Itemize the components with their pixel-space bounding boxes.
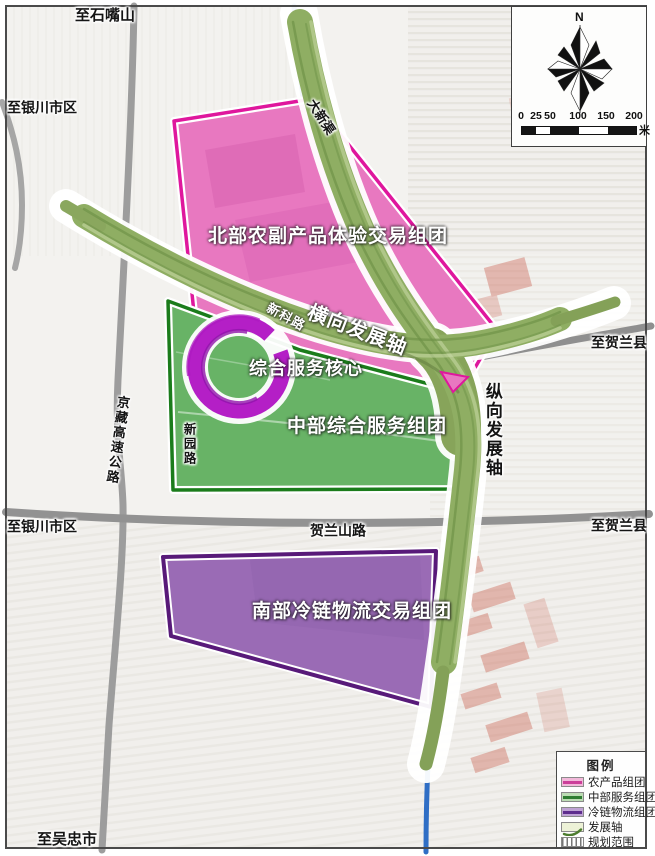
label-south-cluster: 南部冷链物流交易组团 bbox=[252, 602, 452, 622]
scale-tick-200: 200 bbox=[625, 110, 643, 122]
label-north-cluster: 北部农副产品体验交易组团 bbox=[208, 227, 448, 247]
scale-tick-0: 0 bbox=[518, 110, 524, 122]
label-central-cluster: 中部综合服务组团 bbox=[287, 417, 447, 437]
legend-item-central-service: 中部服务组团 bbox=[561, 789, 645, 804]
legend-panel: 图例 农产品组团 中部服务组团 冷链物流组团 发展轴 规划范围 bbox=[556, 751, 646, 848]
scale-segment bbox=[608, 127, 637, 134]
label-helanshan-road: 贺兰山路 bbox=[310, 524, 366, 539]
scale-tick-100: 100 bbox=[569, 110, 587, 122]
scale-tick-150: 150 bbox=[597, 110, 615, 122]
scale-tick-25: 25 bbox=[530, 110, 542, 122]
planning-map-page: 至石嘴山 至银川市区 至银川市区 至吴忠市 至贺兰县 至贺兰县 大新渠 新科路 … bbox=[0, 0, 655, 856]
legend-item-label: 发展轴 bbox=[588, 819, 623, 835]
label-to-wuzhong: 至吴忠市 bbox=[37, 832, 97, 848]
legend-swatch-purple bbox=[561, 807, 584, 817]
legend-swatch-boundary bbox=[561, 837, 584, 847]
scale-unit-label: 米 bbox=[639, 122, 650, 138]
scale-segment bbox=[536, 127, 550, 134]
scale-segment bbox=[522, 127, 536, 134]
compass-scale-panel: N 0 25 50 100 150 200 bbox=[511, 6, 647, 147]
label-vertical-axis: 纵向发展轴 bbox=[483, 383, 501, 478]
legend-item-label: 农产品组团 bbox=[588, 774, 646, 790]
scale-tick-50: 50 bbox=[544, 110, 556, 122]
legend-item-label: 冷链物流组团 bbox=[588, 804, 655, 820]
axis-swoosh-icon bbox=[562, 828, 583, 836]
legend-item-label: 中部服务组团 bbox=[588, 789, 655, 805]
legend-item-agriculture: 农产品组团 bbox=[561, 774, 645, 789]
scale-segment bbox=[550, 127, 579, 134]
legend-item-development-axis: 发展轴 bbox=[561, 820, 645, 835]
label-to-yinchuan-mid: 至银川市区 bbox=[7, 520, 77, 535]
legend-item-cold-chain: 冷链物流组团 bbox=[561, 804, 645, 819]
legend-title: 图例 bbox=[557, 755, 645, 774]
legend-item-label: 规划范围 bbox=[588, 834, 634, 850]
label-to-yinchuan-top: 至银川市区 bbox=[7, 101, 77, 116]
scale-segment bbox=[579, 127, 608, 134]
legend-swatch-pink bbox=[561, 777, 584, 787]
scale-bar bbox=[521, 126, 637, 135]
label-to-helan-lower: 至贺兰县 bbox=[591, 519, 647, 534]
legend-swatch-axis bbox=[561, 822, 584, 832]
legend-item-planning-boundary: 规划范围 bbox=[561, 835, 645, 850]
compass-rose bbox=[512, 19, 648, 119]
label-service-core: 综合服务核心 bbox=[249, 360, 363, 379]
label-xinyuan-road: 新园路 bbox=[181, 422, 194, 466]
label-to-shizuishan: 至石嘴山 bbox=[75, 8, 135, 24]
legend-swatch-green bbox=[561, 792, 584, 802]
label-to-helan-upper: 至贺兰县 bbox=[591, 336, 647, 351]
